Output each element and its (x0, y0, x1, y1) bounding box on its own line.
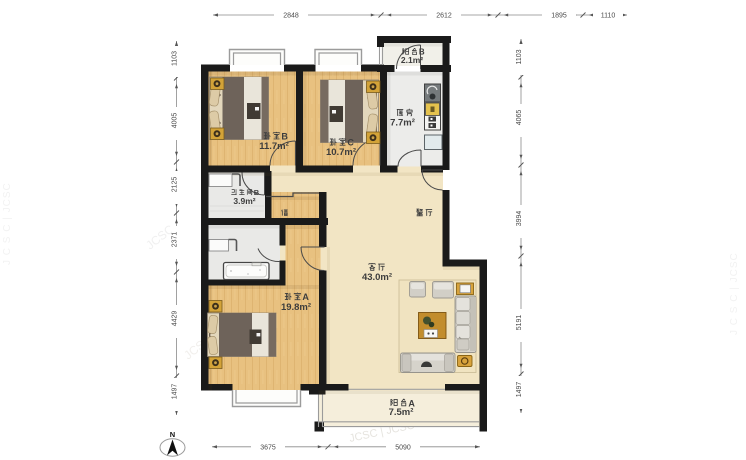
svg-text:2.1m²: 2.1m² (401, 55, 423, 65)
svg-text:C: C (347, 138, 354, 148)
svg-text:N: N (170, 430, 175, 439)
svg-text:3.9m²: 3.9m² (233, 196, 255, 206)
svg-text:1103: 1103 (172, 51, 179, 66)
svg-text:5090: 5090 (395, 444, 411, 451)
svg-text:A: A (302, 292, 309, 302)
svg-text:2125: 2125 (172, 177, 179, 193)
svg-text:2371: 2371 (172, 232, 179, 248)
svg-text:7.7m²: 7.7m² (390, 118, 415, 129)
svg-text:1110: 1110 (601, 13, 616, 20)
svg-text:7.5m²: 7.5m² (389, 407, 414, 418)
svg-text:11.7m²: 11.7m² (259, 141, 289, 152)
svg-text:B: B (281, 131, 288, 141)
svg-text:3994: 3994 (516, 211, 523, 227)
svg-text:J C S C | JCSC: J C S C | JCSC (729, 252, 740, 335)
svg-text:1497: 1497 (172, 384, 179, 400)
svg-text:1895: 1895 (551, 13, 567, 20)
svg-text:4065: 4065 (516, 110, 523, 126)
svg-text:3675: 3675 (260, 444, 276, 451)
svg-text:1103: 1103 (516, 49, 523, 64)
svg-text:2612: 2612 (436, 13, 452, 20)
svg-text:4429: 4429 (172, 311, 179, 327)
svg-text:1497: 1497 (516, 382, 523, 398)
svg-text:4005: 4005 (172, 113, 179, 129)
svg-text:2848: 2848 (283, 13, 299, 20)
svg-text:19.8m²: 19.8m² (281, 302, 311, 313)
svg-text:43.0m²: 43.0m² (362, 272, 392, 283)
svg-text:5191: 5191 (516, 315, 523, 331)
svg-text:J C S C | JCSC: J C S C | JCSC (2, 182, 13, 265)
svg-text:10.7m²: 10.7m² (326, 147, 356, 158)
